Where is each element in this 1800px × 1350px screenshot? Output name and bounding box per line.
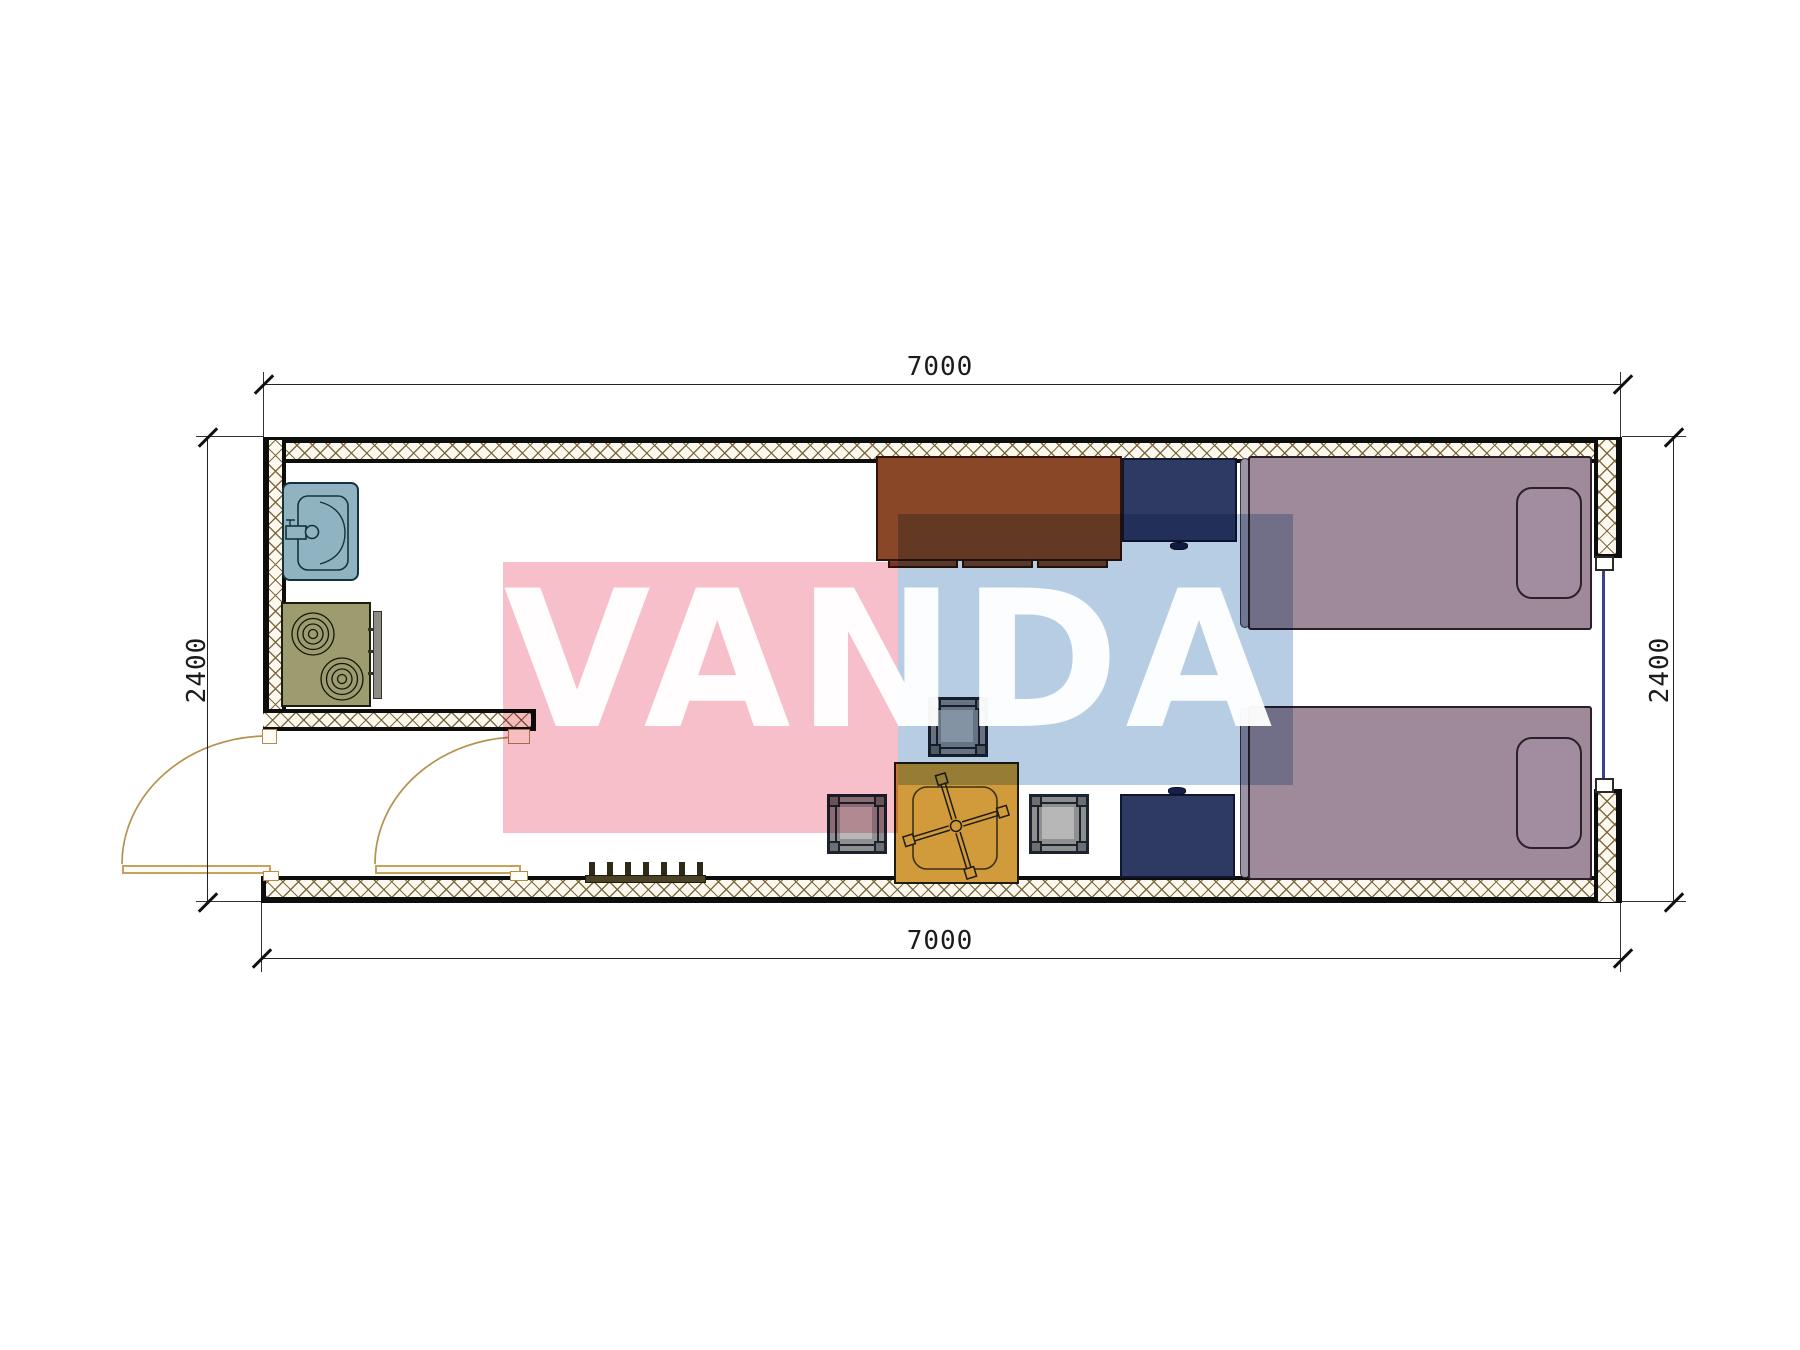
dimension-label-top: 7000 (880, 352, 1000, 382)
stool-right (1029, 794, 1089, 854)
window-sill-top (1595, 556, 1614, 571)
faucet-icon (286, 526, 306, 539)
extension-line (261, 903, 262, 972)
coat-rack (585, 875, 706, 883)
dimension-line-bottom (261, 958, 1622, 959)
coat-rack-peg (625, 862, 631, 875)
dimension-label-bottom: 7000 (880, 926, 1000, 956)
dimension-line-top (263, 384, 1622, 385)
watermark-text: VANDA (535, 565, 1247, 755)
coat-rack-peg (589, 862, 595, 875)
interior-door-leaf (375, 865, 521, 874)
dimension-tick (198, 427, 219, 448)
wall-right-lower (1594, 789, 1622, 902)
kitchen-stove (281, 602, 371, 707)
coat-rack-peg (643, 862, 649, 875)
interior-door-swing-arc (375, 737, 520, 864)
coat-rack-peg (679, 862, 685, 875)
kitchen-sink (282, 482, 359, 581)
dimension-label-right: 2400 (1645, 610, 1675, 730)
wall-interior-partition (263, 709, 536, 731)
stove-rail-tie (368, 672, 374, 675)
dimension-tick (1664, 427, 1685, 448)
interior-door-jamb-bottom (510, 871, 528, 881)
window-sill-bottom (1595, 778, 1614, 793)
bed-bottom-pillow (1516, 737, 1582, 849)
dimension-tick (198, 892, 219, 913)
extension-line (1620, 372, 1621, 437)
exterior-door-leaf (122, 865, 271, 874)
window-glazing-line (1602, 570, 1605, 778)
nightstand-bottom (1120, 794, 1235, 878)
bed-top-pillow (1516, 487, 1582, 599)
floor-plan-canvas: 7000 7000 2400 2400 VANDA (0, 0, 1800, 1350)
exterior-door-jamb-bottom (263, 871, 279, 881)
exterior-door-jamb-top (262, 729, 277, 744)
stove-handle-rail (373, 611, 382, 699)
wall-right-upper (1594, 440, 1622, 558)
nightstand-bottom-knob (1168, 787, 1186, 795)
sink-detail (284, 484, 361, 583)
exterior-door-swing-arc (122, 736, 268, 864)
coat-rack-peg (661, 862, 667, 875)
dimension-tick (1664, 892, 1685, 913)
stove-burners (283, 604, 373, 709)
coat-rack-peg (697, 862, 703, 875)
dimension-label-left: 2400 (182, 610, 212, 730)
coat-rack-peg (607, 862, 613, 875)
stove-rail-tie (368, 628, 374, 631)
stove-rail-tie (368, 650, 374, 653)
